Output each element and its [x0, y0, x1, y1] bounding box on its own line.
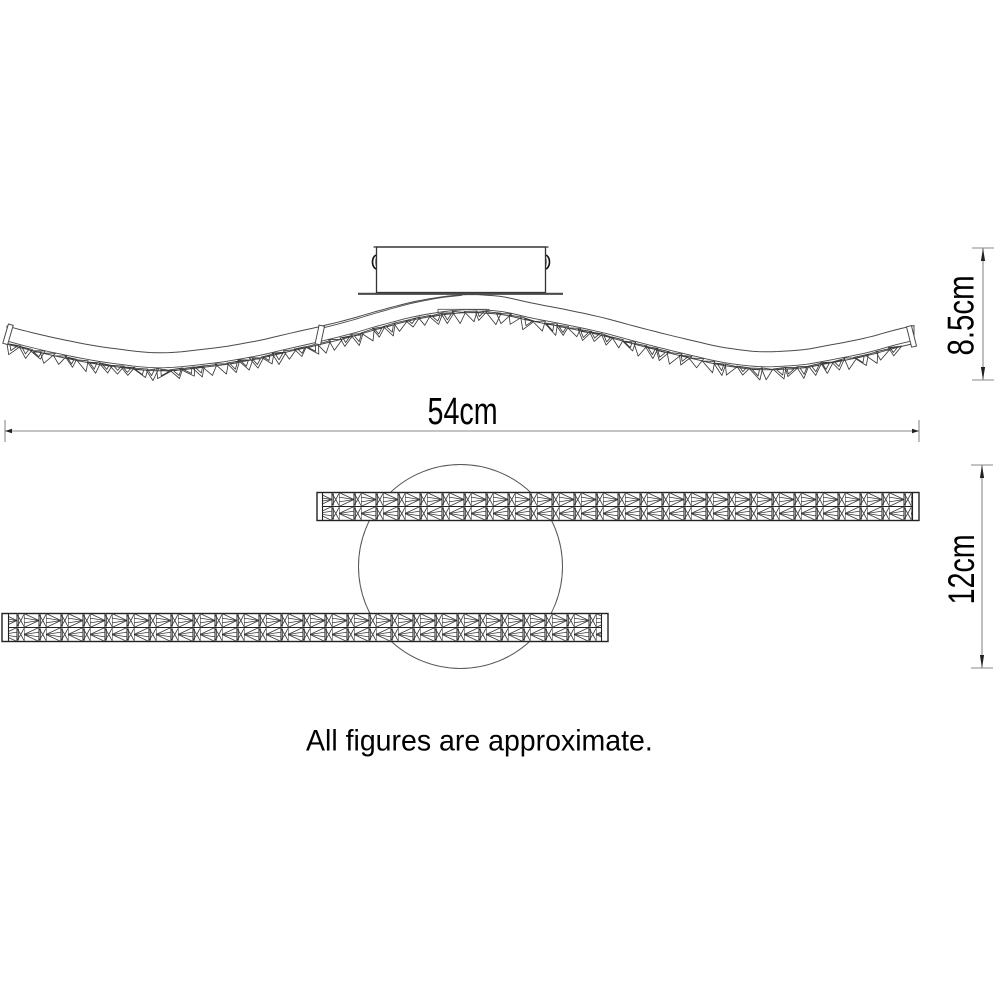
svg-text:All figures are approximate.: All figures are approximate.: [306, 725, 653, 758]
svg-text:8.5cm: 8.5cm: [940, 275, 982, 355]
svg-text:54cm: 54cm: [428, 391, 498, 433]
svg-text:12cm: 12cm: [941, 534, 983, 604]
